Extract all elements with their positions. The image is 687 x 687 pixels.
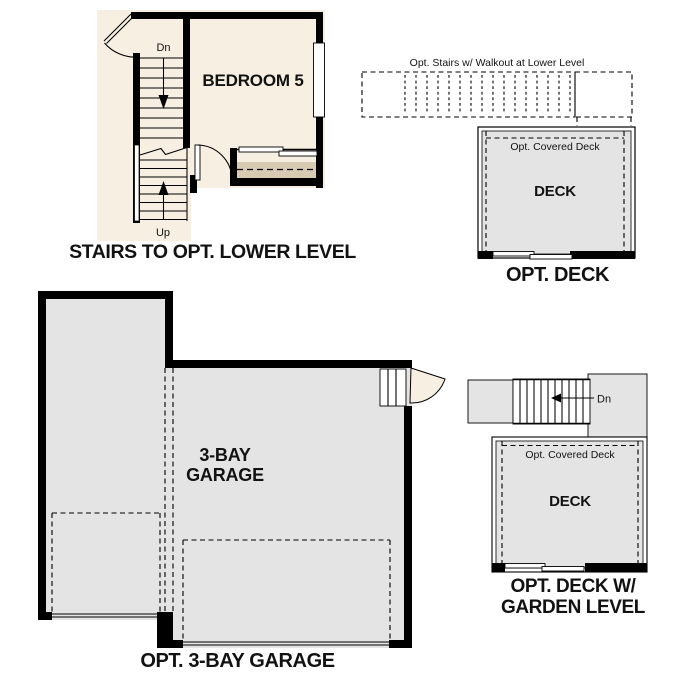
plan-background — [97, 10, 325, 241]
covered-deck-label: Opt. Covered Deck — [525, 449, 615, 461]
stair-landing — [468, 380, 513, 423]
up-label: Up — [156, 227, 170, 239]
upper-walkway — [588, 374, 647, 438]
deck-garden-plan: Dn Opt. Covered Deck DECK — [460, 372, 687, 577]
dn-label: Dn — [156, 42, 170, 54]
deck-garden-caption: OPT. DECK W/ GARDEN LEVEL — [458, 576, 687, 618]
dn-label: Dn — [597, 394, 611, 406]
deck-label: DECK — [534, 183, 576, 200]
opt-deck-plan: Opt. Stairs w/ Walkout at Lower Level — [350, 50, 687, 265]
stairs-box — [513, 379, 590, 424]
bedroom-label: BEDROOM 5 — [202, 71, 303, 90]
opt-deck-caption: OPT. DECK — [450, 265, 665, 286]
deck-label: DECK — [549, 493, 591, 510]
floorplan-sheet: Dn Up BEDROOM 5 STAIRS TO OPT. LOWER LEV… — [0, 0, 687, 687]
bedroom-window — [314, 43, 325, 117]
garage-caption: OPT. 3-BAY GARAGE — [30, 651, 445, 672]
garage-label-line2: GARAGE — [186, 465, 264, 485]
stairs-lower-level-plan: Dn Up BEDROOM 5 — [95, 5, 345, 263]
covered-deck-label: Opt. Covered Deck — [510, 141, 600, 153]
stairs-plan-caption: STAIRS TO OPT. LOWER LEVEL — [40, 242, 385, 263]
stairs-note-label: Opt. Stairs w/ Walkout at Lower Level — [410, 57, 585, 69]
garage-plan: 3-BAY GARAGE — [25, 285, 450, 657]
stair-railing — [135, 145, 140, 221]
optional-stairs-treads — [405, 75, 570, 114]
optional-stairs — [362, 72, 632, 126]
garage-label-line1: 3-BAY — [199, 445, 251, 465]
service-door — [380, 368, 445, 406]
closet — [237, 147, 323, 178]
